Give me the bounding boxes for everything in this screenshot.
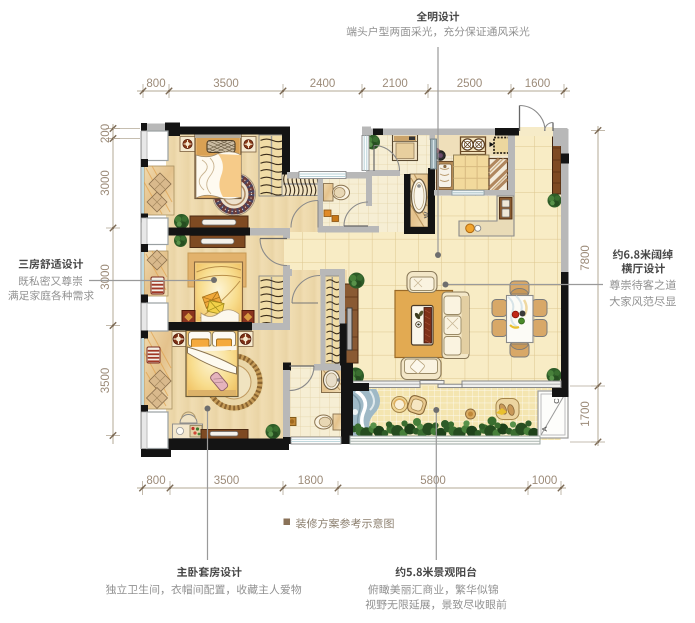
svg-text:7800: 7800 <box>580 245 592 271</box>
svg-text:1800: 1800 <box>298 475 324 487</box>
svg-text:2500: 2500 <box>457 78 483 90</box>
svg-text:800: 800 <box>146 78 165 90</box>
svg-text:3000: 3000 <box>100 264 112 290</box>
svg-text:C: C <box>552 398 561 404</box>
svg-text:800: 800 <box>146 475 165 487</box>
svg-text:1600: 1600 <box>525 78 551 90</box>
svg-text:2100: 2100 <box>382 78 408 90</box>
svg-text:A: A <box>540 426 549 431</box>
svg-text:3500: 3500 <box>213 78 239 90</box>
svg-text:1000: 1000 <box>532 475 558 487</box>
svg-text:200: 200 <box>100 124 112 143</box>
svg-text:3500: 3500 <box>214 475 240 487</box>
svg-text:3500: 3500 <box>100 368 112 394</box>
svg-text:1700: 1700 <box>580 401 592 427</box>
svg-text:5800: 5800 <box>420 475 446 487</box>
svg-text:2400: 2400 <box>310 78 336 90</box>
svg-text:3000: 3000 <box>100 170 112 196</box>
